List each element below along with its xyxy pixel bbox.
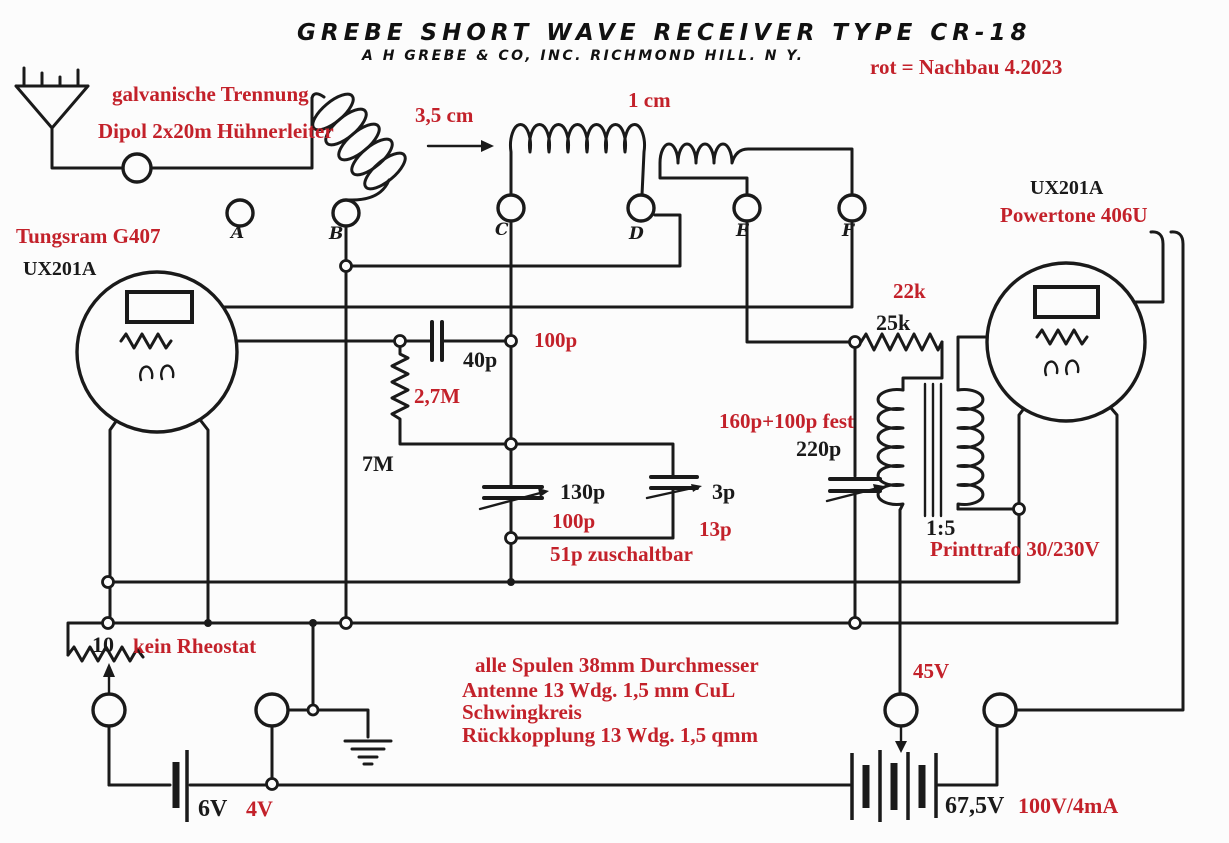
grid-leak-label: 7M xyxy=(362,451,394,476)
tube2-type-label: UX201A xyxy=(1030,177,1104,199)
coil-length-label: 3,5 cm xyxy=(415,103,474,127)
post-d xyxy=(628,195,654,221)
cap-switch-label: 51p zuschaltbar xyxy=(550,542,693,566)
grid-leak-resistor xyxy=(392,347,673,477)
phones-post xyxy=(984,694,1016,726)
transformer-core xyxy=(925,384,941,516)
tube1-envelope xyxy=(77,272,237,432)
antenna-type-label: Dipol 2x20m Hühnerleiter xyxy=(98,119,334,143)
b-battery-67v xyxy=(852,750,936,822)
ground-icon xyxy=(345,741,391,764)
tube2-triode xyxy=(987,263,1145,421)
secondary-winding xyxy=(958,390,983,509)
fine-cap-label: 3p xyxy=(712,479,735,504)
junction xyxy=(850,618,861,629)
junction xyxy=(506,336,517,347)
tuning-cap-new-label: 100p xyxy=(552,509,595,533)
tube1-make-label: Tungsram G407 xyxy=(16,224,161,248)
primary-winding xyxy=(878,390,903,510)
junction xyxy=(395,336,406,347)
junction-dot xyxy=(309,619,317,627)
grid-leak-new-label: 2,7M xyxy=(414,384,460,408)
terminal-a-label: A xyxy=(229,223,244,243)
coil-note-1: alle Spulen 38mm Durchmesser xyxy=(475,653,759,677)
a-battery-6v xyxy=(176,750,187,822)
a-battery-new-label: 4V xyxy=(246,796,273,821)
coil-note-2: Antenne 13 Wdg. 1,5 mm CuL xyxy=(462,678,735,702)
junction xyxy=(341,261,352,272)
plate-res-label: 25k xyxy=(876,310,911,335)
tube1-type-label: UX201A xyxy=(23,258,97,280)
junction xyxy=(850,337,861,348)
tuning-cap-plates-130p xyxy=(484,487,542,498)
fine-cap-plates-3p xyxy=(651,477,697,488)
terminal-f-label: F xyxy=(841,221,856,241)
coil-gap-label: 1 cm xyxy=(628,88,671,112)
junction xyxy=(267,779,278,790)
terminal-d-label: D xyxy=(628,224,644,244)
plate-resistor-25k xyxy=(861,334,942,350)
junction xyxy=(506,439,517,450)
tuning-cap-label: 130p xyxy=(560,479,605,504)
grid-cap-new-label: 100p xyxy=(534,328,577,352)
coupling-new-label: 160p+100p fest xyxy=(719,409,854,433)
junction xyxy=(103,577,114,588)
post-c xyxy=(498,195,524,221)
transformer-note-label: Printtrafo 30/230V xyxy=(930,537,1100,561)
a-battery-label: 6V xyxy=(198,796,228,822)
schematic-page: GREBE SHORT WAVE RECEIVER TYPE CR-18 A H… xyxy=(0,0,1229,843)
post-e xyxy=(734,195,760,221)
post-b xyxy=(333,200,359,226)
junction xyxy=(341,618,352,629)
rheostat-value-label: 10 xyxy=(92,632,114,657)
arrowhead-icon xyxy=(103,663,115,677)
junction-dot xyxy=(204,619,212,627)
b-tap-label: 45V xyxy=(913,659,949,683)
grid-capacitor-40p xyxy=(432,322,442,360)
junction xyxy=(103,618,114,629)
b45-post xyxy=(885,694,917,726)
arrowhead-icon xyxy=(538,488,549,497)
terminal-c-label: C xyxy=(495,220,509,240)
b-battery-new-label: 100V/4mA xyxy=(1018,793,1118,818)
arrowhead-icon xyxy=(481,140,494,152)
battery-plates-short xyxy=(866,763,922,810)
schematic-drawing: GREBE SHORT WAVE RECEIVER TYPE CR-18 A H… xyxy=(0,0,1229,843)
rheostat-note-label: kein Rheostat xyxy=(133,634,256,658)
junction xyxy=(308,705,318,715)
junction xyxy=(506,533,517,544)
b-battery-label: 67,5V xyxy=(945,793,1005,819)
tuning-coil xyxy=(511,124,645,195)
tube1-triode xyxy=(77,272,237,432)
grid-cap-label: 40p xyxy=(463,347,497,372)
plate-res-new-label: 22k xyxy=(893,279,926,303)
coupling-label: 220p xyxy=(796,436,841,461)
tube2-make-label: Powertone 406U xyxy=(1000,203,1148,227)
terminal-b-label: B xyxy=(328,224,343,244)
coil-note-4: Rückkopplung 13 Wdg. 1,5 qmm xyxy=(462,723,759,747)
legend-note: rot = Nachbau 4.2023 xyxy=(870,55,1062,79)
rheostat-post xyxy=(93,694,125,726)
post-f xyxy=(839,195,865,221)
ground-post xyxy=(256,694,288,726)
terminal-e-label: E xyxy=(735,221,750,241)
arrowhead-icon xyxy=(691,484,702,492)
terminal-e-wire xyxy=(747,221,849,342)
title-line1: GREBE SHORT WAVE RECEIVER TYPE CR-18 xyxy=(297,20,1031,46)
junction xyxy=(1014,504,1025,515)
coil-note-3: Schwingkreis xyxy=(462,700,582,724)
arrowhead-icon xyxy=(895,741,907,753)
antenna-isolation-label: galvanische Trennung xyxy=(112,82,309,106)
fine-cap-new-label: 13p xyxy=(699,517,732,541)
tickler-coil xyxy=(660,144,852,195)
title-line2: A H GREBE & CO, INC. RICHMOND HILL. N Y. xyxy=(361,48,805,64)
junction-dot xyxy=(507,578,515,586)
antenna-post xyxy=(123,154,151,182)
antenna-coupling-coil xyxy=(307,88,410,200)
